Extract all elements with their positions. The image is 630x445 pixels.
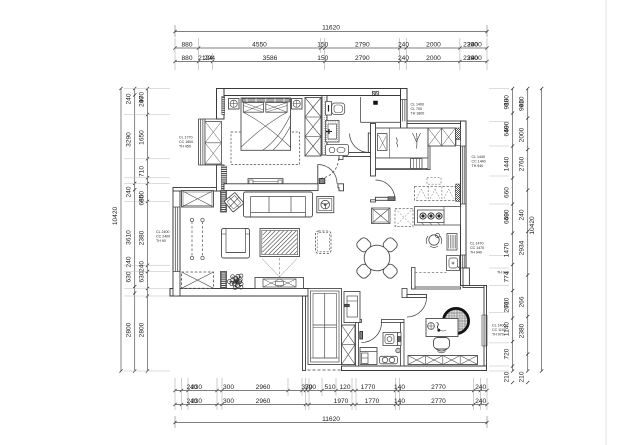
svg-text:660: 660 [504, 187, 511, 198]
svg-text:2790: 2790 [355, 41, 370, 48]
svg-text:CL 1440: CL 1440 [472, 155, 485, 159]
svg-text:CC 1440: CC 1440 [472, 160, 486, 164]
svg-text:1470: 1470 [504, 242, 511, 257]
svg-text:240: 240 [398, 55, 409, 62]
svg-text:3610: 3610 [126, 230, 133, 245]
svg-text:TH 1800: TH 1800 [411, 112, 425, 116]
svg-text:240: 240 [519, 209, 526, 220]
svg-text:940: 940 [519, 100, 526, 111]
svg-text:880: 880 [181, 55, 192, 62]
svg-text:CL 1400: CL 1400 [411, 103, 424, 107]
svg-text:2000: 2000 [519, 127, 526, 142]
svg-text:640: 640 [504, 213, 511, 224]
svg-text:140: 140 [394, 384, 405, 391]
svg-text:230: 230 [191, 398, 202, 405]
svg-text:240: 240 [126, 93, 133, 104]
svg-text:2934: 2934 [519, 240, 526, 255]
svg-text:720: 720 [504, 348, 511, 359]
svg-text:1650: 1650 [138, 130, 145, 145]
svg-text:CC 1600: CC 1600 [179, 140, 193, 144]
svg-text:TH 90: TH 90 [156, 239, 166, 243]
svg-text:3586: 3586 [263, 55, 278, 62]
svg-text:266: 266 [504, 301, 511, 312]
svg-text:240: 240 [126, 186, 133, 197]
svg-text:10420: 10420 [112, 207, 119, 226]
svg-text:240: 240 [138, 261, 145, 272]
svg-text:150: 150 [317, 55, 328, 62]
svg-text:240: 240 [475, 384, 486, 391]
svg-text:230: 230 [191, 384, 202, 391]
svg-text:2960: 2960 [256, 384, 271, 391]
svg-text:300: 300 [223, 384, 234, 391]
svg-text:240: 240 [398, 41, 409, 48]
svg-text:2400: 2400 [467, 55, 482, 62]
svg-text:680: 680 [138, 194, 145, 205]
svg-text:CL 1400: CL 1400 [492, 324, 505, 328]
svg-text:11620: 11620 [322, 416, 340, 423]
svg-text:1770: 1770 [361, 384, 376, 391]
svg-text:2760: 2760 [519, 156, 526, 171]
svg-text:880: 880 [181, 41, 192, 48]
svg-text:910: 910 [504, 98, 511, 109]
svg-text:CL 1770: CL 1770 [179, 136, 192, 140]
svg-text:210: 210 [519, 371, 526, 382]
svg-text:2770: 2770 [431, 398, 446, 405]
svg-text:3290: 3290 [126, 132, 133, 147]
svg-text:240: 240 [475, 398, 486, 405]
svg-text:2000: 2000 [426, 41, 441, 48]
svg-text:CL 2400: CL 2400 [156, 230, 169, 234]
svg-text:204: 204 [204, 55, 215, 62]
svg-text:390: 390 [305, 384, 316, 391]
svg-text:CL 1470: CL 1470 [470, 242, 483, 246]
svg-text:1440: 1440 [504, 156, 511, 171]
svg-text:710: 710 [138, 166, 145, 177]
svg-text:TH 970: TH 970 [492, 333, 504, 337]
svg-text:120: 120 [339, 384, 350, 391]
svg-text:TH 940: TH 940 [470, 251, 482, 255]
svg-text:2960: 2960 [256, 398, 271, 405]
svg-text:CC 1470: CC 1470 [470, 246, 484, 250]
svg-text:2790: 2790 [355, 55, 370, 62]
svg-text:510: 510 [324, 384, 335, 391]
svg-text:240: 240 [138, 96, 145, 107]
svg-text:1970: 1970 [334, 398, 349, 405]
svg-text:630: 630 [126, 271, 133, 282]
svg-text:2380: 2380 [138, 230, 145, 245]
svg-text:2800: 2800 [126, 322, 133, 337]
svg-text:630: 630 [138, 271, 145, 282]
svg-text:CL 700: CL 700 [411, 107, 422, 111]
svg-text:266: 266 [519, 296, 526, 307]
svg-text:2800: 2800 [138, 322, 145, 337]
svg-text:240: 240 [126, 256, 133, 267]
svg-text:1770: 1770 [365, 398, 380, 405]
svg-text:TH 450: TH 450 [179, 145, 191, 149]
svg-text:2000: 2000 [426, 55, 441, 62]
svg-text:2770: 2770 [431, 384, 446, 391]
svg-text:210: 210 [504, 371, 511, 382]
svg-text:10420: 10420 [529, 216, 536, 235]
svg-text:640: 640 [504, 125, 511, 136]
svg-text:TH 940: TH 940 [497, 271, 509, 275]
svg-text:2400: 2400 [467, 41, 482, 48]
svg-text:11620: 11620 [322, 25, 340, 32]
svg-text:150: 150 [317, 41, 328, 48]
svg-text:2380: 2380 [519, 323, 526, 338]
svg-text:140: 140 [394, 398, 405, 405]
svg-text:CC 2400: CC 2400 [156, 235, 170, 239]
svg-text:TH 940: TH 940 [472, 164, 484, 168]
svg-text:CC 1100: CC 1100 [492, 328, 506, 332]
svg-text:4550: 4550 [252, 41, 267, 48]
svg-text:300: 300 [223, 398, 234, 405]
